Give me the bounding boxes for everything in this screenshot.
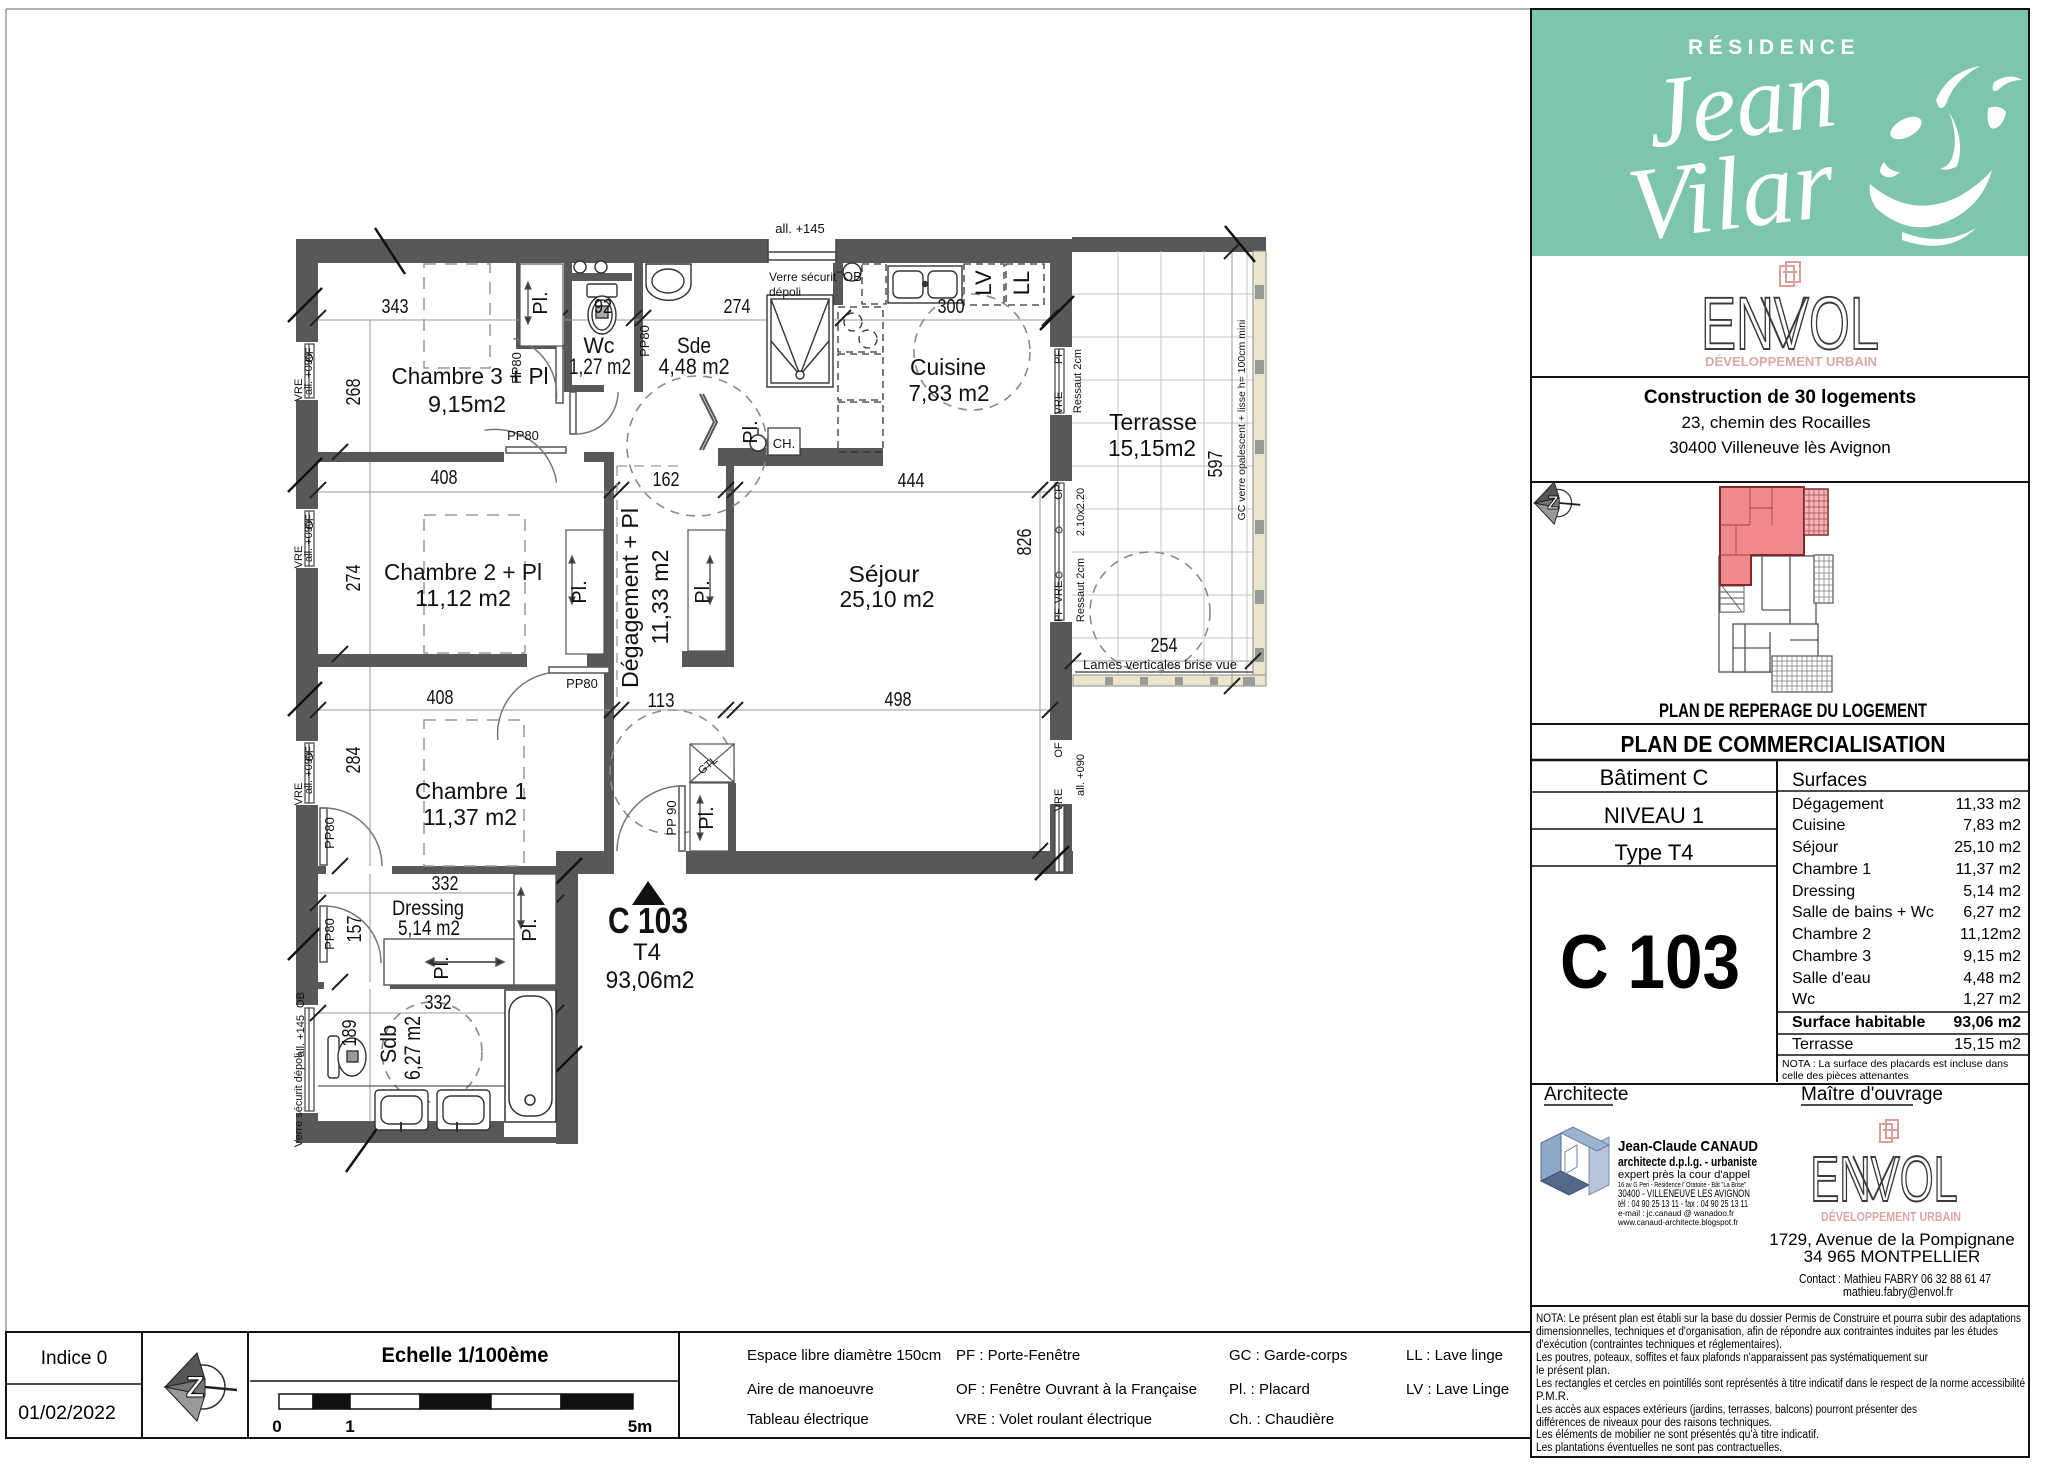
svg-text:274: 274 [724,296,751,318]
svg-text:Les rectangles et cercles: Les rectangles et cercles en pointillés … [1536,1378,2025,1390]
svg-text:Salle de bains + Wc: Salle de bains + Wc [1792,904,1934,921]
svg-text:Z: Z [1547,492,1558,513]
svg-text:Pl.: Pl. [696,806,718,829]
svg-text:1,27 m2: 1,27 m2 [1963,991,2021,1008]
svg-text:PP80: PP80 [322,817,337,849]
svg-text:ENVOL: ENVOL [1701,282,1879,365]
svg-text:www.canaud-architecte.blogspot: www.canaud-architecte.blogspot.fr [1617,1217,1738,1227]
svg-text:OF : Fenêtre Ouvrant à la Fran: OF : Fenêtre Ouvrant à la Française [956,1381,1197,1398]
svg-text:Cuisine: Cuisine [910,354,986,380]
svg-text:Les poutres, poteaux, soffi: Les poutres, poteaux, soffites et faux p… [1536,1352,1928,1364]
svg-text:PLAN DE COMMERCIALISATION: PLAN DE COMMERCIALISATION [1621,731,1946,757]
svg-text:274: 274 [343,565,365,592]
svg-text:Surface habitable: Surface habitable [1792,1014,1925,1031]
svg-text:Echelle 1/100ème: Echelle 1/100ème [382,1344,549,1367]
svg-text:11,33 m2: 11,33 m2 [647,550,673,645]
svg-text:Espace libre diamètre 150cm: Espace libre diamètre 150cm [747,1347,941,1364]
svg-text:VRE: VRE [1053,392,1065,415]
svg-text:d'exécution (contraintes tec: d'exécution (contraintes techniques et r… [1536,1339,1782,1351]
svg-text:Indice 0: Indice 0 [41,1348,108,1369]
svg-text:5m: 5m [628,1417,653,1436]
svg-text:11,37 m2: 11,37 m2 [1955,861,2021,878]
svg-text:Les accès aux espaces exté: Les accès aux espaces extérieurs (jardin… [1536,1404,1917,1416]
svg-text:VRE: VRE [293,783,305,806]
svg-text:Chambre 1: Chambre 1 [415,778,527,804]
svg-text:T4: T4 [633,939,661,966]
svg-text:C 103: C 103 [1560,920,1740,1005]
svg-text:Pl.: Pl. [692,580,714,603]
svg-text:Bâtiment C: Bâtiment C [1600,765,1709,790]
svg-text:NOTA: Le présent plan est étab: NOTA: Le présent plan est établi sur la … [1536,1313,2021,1325]
svg-text:celle des pièces attenantes: celle des pièces attenantes [1782,1070,1909,1082]
svg-text:PF : Porte-Fenêtre: PF : Porte-Fenêtre [956,1347,1080,1364]
svg-text:Verre sécurit: Verre sécurit [769,270,837,284]
svg-text:408: 408 [427,687,454,709]
svg-text:Chambre 1: Chambre 1 [1792,861,1871,878]
svg-text:GC verre opalescent + lisse h=: GC verre opalescent + lisse h= 100cm min… [1236,320,1248,521]
svg-text:mathieu.fabry@envol.fr: mathieu.fabry@envol.fr [1843,1285,1953,1299]
svg-text:P.M.R.: P.M.R. [1536,1391,1569,1403]
svg-text:Architecte: Architecte [1544,1084,1628,1105]
svg-text:2.10x2.20: 2.10x2.20 [1075,488,1087,536]
svg-text:Salle d'eau: Salle d'eau [1792,970,1871,987]
svg-text:157: 157 [344,916,366,943]
svg-text:7,83 m2: 7,83 m2 [1963,817,2021,834]
svg-text:all. +145: all. +145 [295,1015,307,1057]
svg-text:Chambre 2 + Pl: Chambre 2 + Pl [384,559,542,585]
svg-text:113: 113 [648,690,675,712]
svg-text:PP80: PP80 [509,352,524,384]
svg-text:Ressaut 2cm: Ressaut 2cm [1072,349,1084,413]
svg-text:9,15 m2: 9,15 m2 [1963,948,2021,965]
svg-text:Dressing: Dressing [1792,883,1855,900]
svg-text:4,48 m2: 4,48 m2 [659,354,730,379]
svg-text:LV : Lave Linge: LV : Lave Linge [1406,1381,1509,1398]
svg-text:0: 0 [272,1417,281,1436]
svg-text:PP 90: PP 90 [664,800,679,835]
svg-text:Z: Z [186,1371,204,1404]
svg-text:Sdb: Sdb [376,1025,401,1063]
svg-text:CP: CP [1053,484,1065,499]
svg-text:Type T4: Type T4 [1614,840,1693,865]
svg-text:25,10 m2: 25,10 m2 [840,586,935,612]
svg-text:PLAN DE REPERAGE DU LOGEMENT: PLAN DE REPERAGE DU LOGEMENT [1659,701,1927,722]
svg-text:NOTA : La surface des placards: NOTA : La surface des placards est inclu… [1782,1058,2008,1070]
svg-text:01/02/2022: 01/02/2022 [18,1402,116,1424]
svg-text:9,15m2: 9,15m2 [428,391,506,417]
svg-text:Surfaces: Surfaces [1792,770,1867,791]
svg-text:11,12m2: 11,12m2 [1960,926,2021,943]
svg-text:Dégagement: Dégagement [1792,796,1884,813]
svg-text:Terrasse: Terrasse [1109,409,1197,435]
svg-text:Pl.: Pl. [519,918,541,941]
svg-text:DÉVELOPPEMENT URBAIN: DÉVELOPPEMENT URBAIN [1705,354,1877,369]
svg-text:CH.: CH. [773,436,795,451]
svg-text:332: 332 [425,992,452,1014]
svg-text:PF: PF [1053,608,1065,622]
svg-text:Chambre 3: Chambre 3 [1792,948,1871,965]
svg-text:6,27 m2: 6,27 m2 [1963,904,2021,921]
svg-text:Pl.: Pl. [530,291,552,314]
svg-text:LL : Lave linge: LL : Lave linge [1406,1347,1503,1364]
svg-text:Wc: Wc [1792,991,1815,1008]
svg-text:300: 300 [938,296,965,318]
svg-text:408: 408 [431,467,458,489]
svg-text:Aire de manoeuvre: Aire de manoeuvre [747,1381,874,1398]
svg-text:Contact : Mathieu FABRY 06 32: Contact : Mathieu FABRY 06 32 88 61 47 [1799,1272,1991,1286]
svg-text:GC : Garde-corps: GC : Garde-corps [1229,1347,1347,1364]
svg-text:PP80: PP80 [507,428,539,443]
svg-text:LL: LL [1009,271,1034,295]
svg-text:7,83 m2: 7,83 m2 [909,380,990,406]
svg-text:Verre sécurit dépoli: Verre sécurit dépoli [293,1053,305,1147]
svg-text:VRE : Volet roulant électrique: VRE : Volet roulant électrique [956,1411,1152,1428]
svg-text:Séjour: Séjour [849,561,920,587]
svg-text:Séjour: Séjour [1792,839,1839,856]
svg-text:92: 92 [594,296,612,318]
svg-text:VRE: VRE [1053,789,1065,812]
svg-text:93,06 m2: 93,06 m2 [1953,1014,2021,1031]
svg-text:C 103: C 103 [608,900,688,941]
svg-text:dimensionnelles, techniques: dimensionnelles, techniques et d'organis… [1536,1326,1998,1338]
svg-text:PP80: PP80 [322,918,337,950]
svg-text:Terrasse: Terrasse [1792,1036,1853,1053]
svg-text:Tableau électrique: Tableau électrique [747,1411,869,1428]
svg-text:OB: OB [843,269,862,284]
svg-text:23, chemin des Rocailles: 23, chemin des Rocailles [1682,413,1871,432]
svg-text:dépoli: dépoli [769,285,801,299]
svg-text:architecte d.p.l.g. - urban: architecte d.p.l.g. - urbaniste [1618,1154,1757,1169]
svg-text:1,27 m2: 1,27 m2 [569,354,631,379]
svg-text:le présent plan.: le présent plan. [1536,1365,1610,1377]
svg-text:5,14 m2: 5,14 m2 [398,917,460,940]
svg-text:Ch. : Chaudière: Ch. : Chaudière [1229,1411,1334,1428]
svg-text:284: 284 [343,747,365,774]
svg-text:15,15m2: 15,15m2 [1108,435,1196,461]
svg-text:162: 162 [653,469,680,491]
svg-text:OF: OF [1053,742,1065,758]
svg-text:11,33 m2: 11,33 m2 [1955,796,2021,813]
svg-text:LV: LV [971,270,996,296]
svg-text:all. +090: all. +090 [1075,754,1087,796]
svg-text:498: 498 [885,689,912,711]
svg-text:différences de niveaux pour: différences de niveaux pour des raisons … [1536,1417,1772,1429]
svg-text:VRE: VRE [1053,581,1065,604]
svg-text:1: 1 [345,1417,354,1436]
svg-text:Pl. : Placard: Pl. : Placard [1229,1381,1310,1398]
svg-text:Ressaut 2cm: Ressaut 2cm [1075,558,1087,622]
svg-text:444: 444 [898,470,925,492]
svg-text:15,15 m2: 15,15 m2 [1954,1036,2021,1053]
svg-text:6,27 m2: 6,27 m2 [400,1016,425,1080]
svg-text:PP80: PP80 [566,676,598,691]
svg-text:Les plantations éventuelles: Les plantations éventuelles ne sont pas … [1536,1442,1782,1454]
svg-text:NIVEAU 1: NIVEAU 1 [1604,803,1704,828]
svg-text:Maître d'ouvrage: Maître d'ouvrage [1801,1084,1943,1105]
svg-text:PP80: PP80 [637,325,652,357]
svg-text:Construction de 30 logements: Construction de 30 logements [1644,387,1916,408]
svg-text:254: 254 [1151,635,1178,657]
svg-text:25,10 m2: 25,10 m2 [1954,839,2021,856]
svg-text:Pl.: Pl. [431,956,453,979]
svg-text:OB: OB [295,992,307,1008]
svg-text:Les éléments de mobilier n: Les éléments de mobilier ne sont présent… [1536,1429,1819,1441]
svg-text:343: 343 [382,296,409,318]
svg-text:332: 332 [432,873,459,895]
svg-text:Pl.: Pl. [740,420,762,443]
svg-text:Cuisine: Cuisine [1792,817,1845,834]
svg-text:826: 826 [1014,529,1036,556]
svg-text:189: 189 [339,1020,361,1047]
svg-text:11,12 m2: 11,12 m2 [415,585,511,611]
svg-text:5,14 m2: 5,14 m2 [1963,883,2021,900]
svg-text:Jean-Claude CANAUD: Jean-Claude CANAUD [1618,1138,1758,1155]
svg-text:VRE: VRE [293,379,305,402]
svg-text:Chambre 3 + Pl: Chambre 3 + Pl [392,363,549,389]
svg-text:DÉVELOPPEMENT URBAIN: DÉVELOPPEMENT URBAIN [1821,1209,1961,1224]
svg-text:Pl.: Pl. [569,580,591,603]
svg-text:all. +145: all. +145 [775,221,825,236]
svg-text:PF: PF [1053,350,1065,364]
svg-text:Lames verticales brise vue: Lames verticales brise vue [1083,657,1237,672]
svg-text:93,06m2: 93,06m2 [606,967,695,994]
svg-text:34 965 MONTPELLIER: 34 965 MONTPELLIER [1804,1247,1981,1266]
svg-text:Dégagement + Pl: Dégagement + Pl [617,508,643,688]
svg-text:4,48 m2: 4,48 m2 [1963,970,2021,987]
svg-text:11,37 m2: 11,37 m2 [423,804,517,830]
svg-text:VRE: VRE [293,546,305,569]
svg-text:Chambre 2: Chambre 2 [1792,926,1871,943]
svg-text:597: 597 [1205,451,1227,478]
svg-text:30400 Villeneuve lès Avignon: 30400 Villeneuve lès Avignon [1669,438,1891,457]
svg-text:268: 268 [343,379,365,406]
